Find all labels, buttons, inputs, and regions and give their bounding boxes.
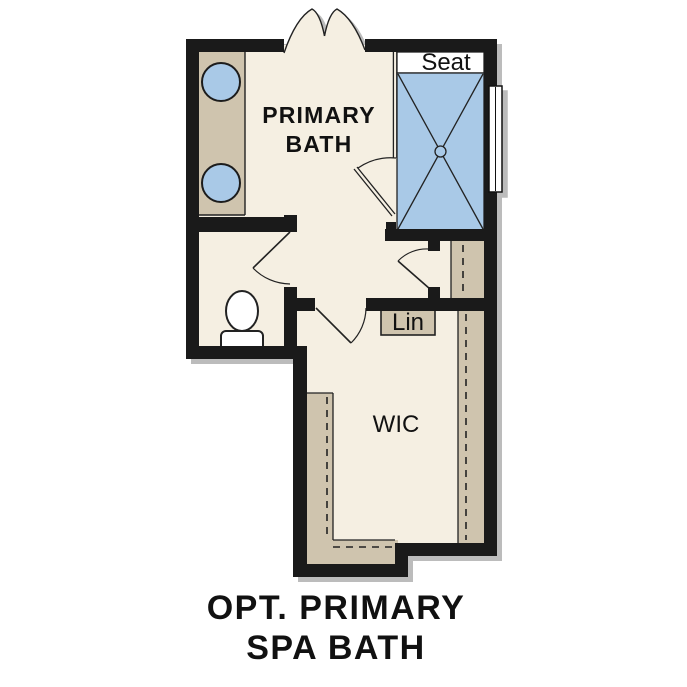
wall-segment [186,346,297,359]
plan-title-line1: OPT. PRIMARY [0,588,672,628]
closet-shelf [451,240,484,298]
wall-segment [186,39,199,359]
wall-segment [293,346,307,577]
sink-basin-icon [202,164,240,202]
wic-label: WIC [373,411,420,438]
wall-segment [395,543,497,556]
plan-title: OPT. PRIMARY SPA BATH [0,588,672,668]
wall-segment [284,215,297,232]
plan-title-line2: SPA BATH [0,628,672,668]
wall-segment [297,298,315,311]
primary-bath-label-line1: PRIMARY [262,102,376,128]
primary-bath-label-line2: BATH [286,131,353,157]
sink-basin-icon [202,63,240,101]
toilet-bowl [226,291,258,331]
linen-label: Lin [392,309,424,336]
arched-opening-fill [284,9,365,53]
floor-plan-drawing: PRIMARY BATH Seat Lin WIC [0,0,687,592]
floor-plan-page: PRIMARY BATH Seat Lin WIC OPT. PRIMARY S… [0,0,687,687]
floor-plan: PRIMARY BATH Seat Lin WIC [186,9,502,577]
closet-shelf [458,311,484,543]
wall-segment [366,298,484,311]
shower-seat-label: Seat [421,49,471,76]
wall-segment [385,229,484,241]
wall-segment [428,240,440,251]
closet-shelf [307,540,398,565]
shower-drain-icon [435,146,446,157]
closet-shelf [307,393,333,565]
wall-segment [186,217,297,232]
wall-segment [293,564,408,577]
wall-segment [386,222,396,241]
wall-segment [186,39,284,52]
